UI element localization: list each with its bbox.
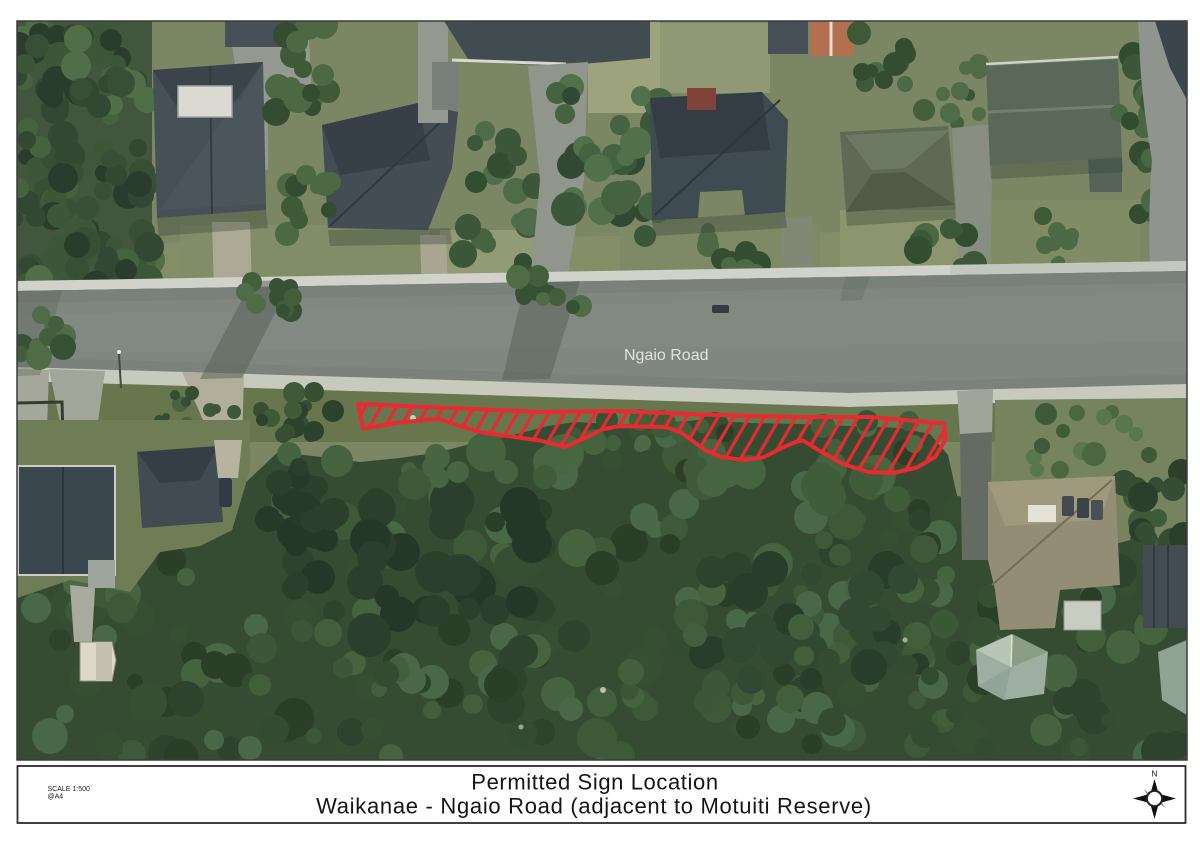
svg-text:SCALE 1:500: SCALE 1:500 <box>48 786 91 793</box>
svg-text:Waikanae - Ngaio Road (adjacen: Waikanae - Ngaio Road (adjacent to Motui… <box>316 794 872 819</box>
svg-text:@A4: @A4 <box>48 794 64 801</box>
svg-text:N: N <box>1151 769 1157 779</box>
svg-text:Permitted Sign Location: Permitted Sign Location <box>471 770 718 795</box>
